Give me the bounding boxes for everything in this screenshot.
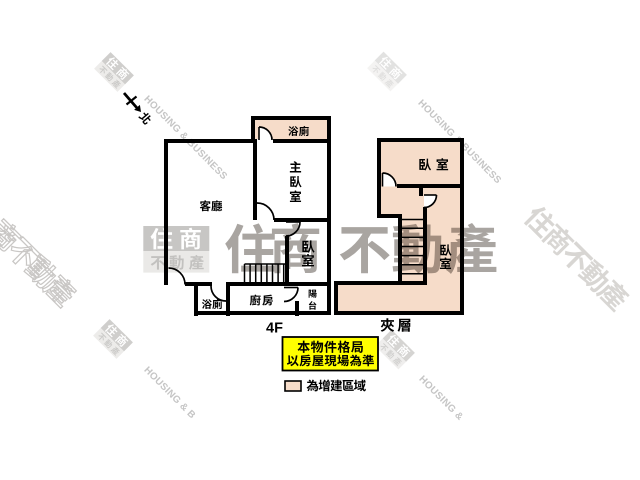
svg-text:4F: 4F <box>266 321 283 337</box>
